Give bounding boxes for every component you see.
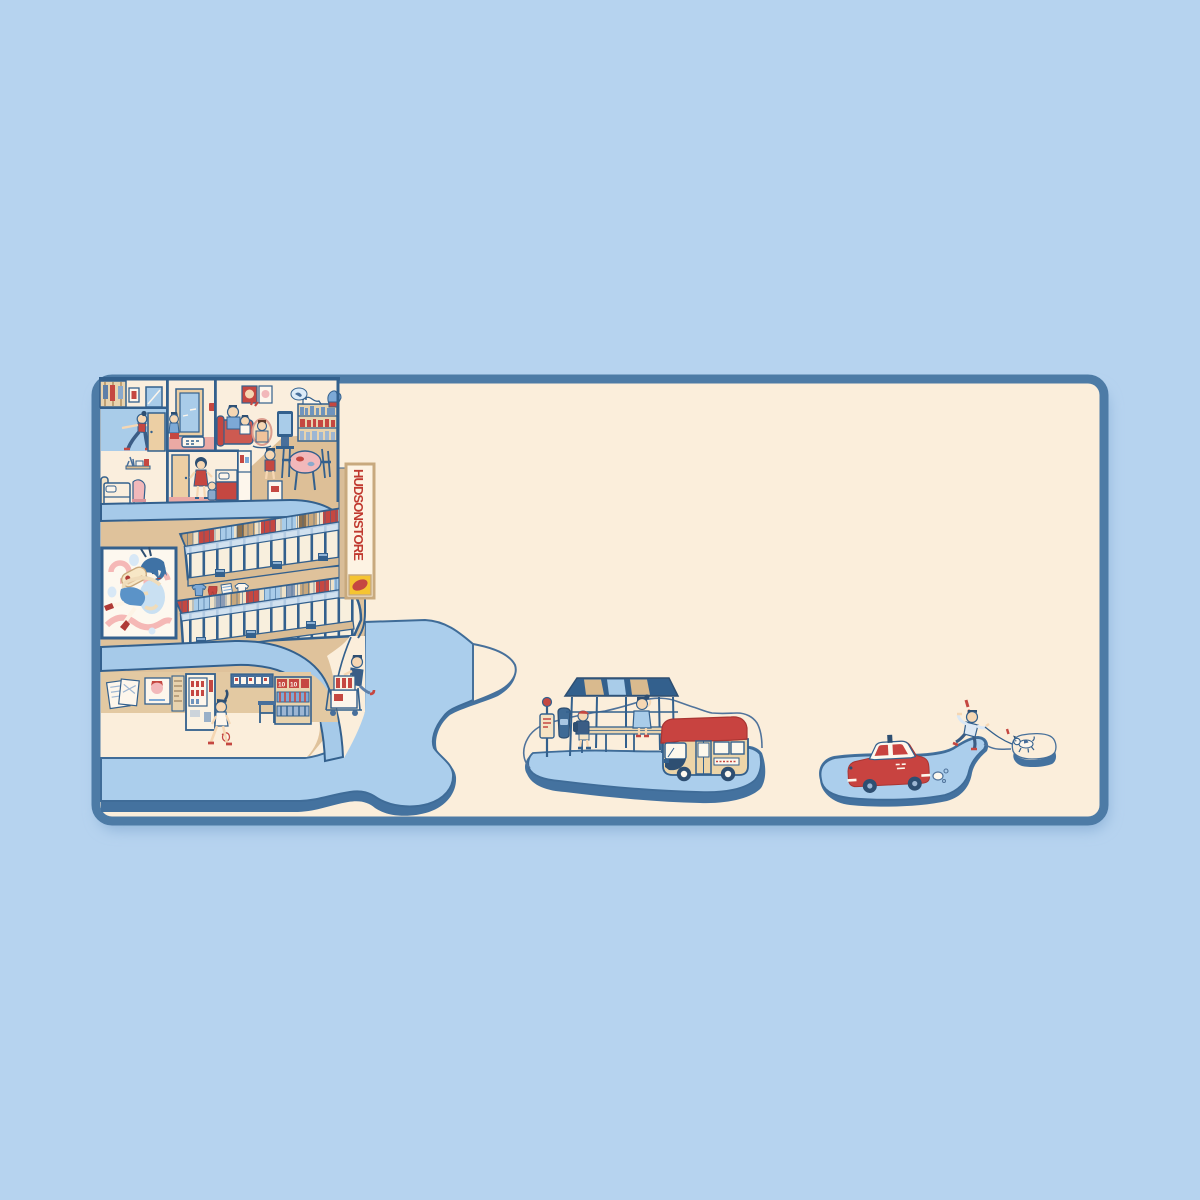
svg-text:10: 10 — [278, 682, 286, 689]
svg-text:HUDSONSTORE: HUDSONSTORE — [351, 469, 366, 561]
svg-text:10: 10 — [290, 682, 298, 689]
